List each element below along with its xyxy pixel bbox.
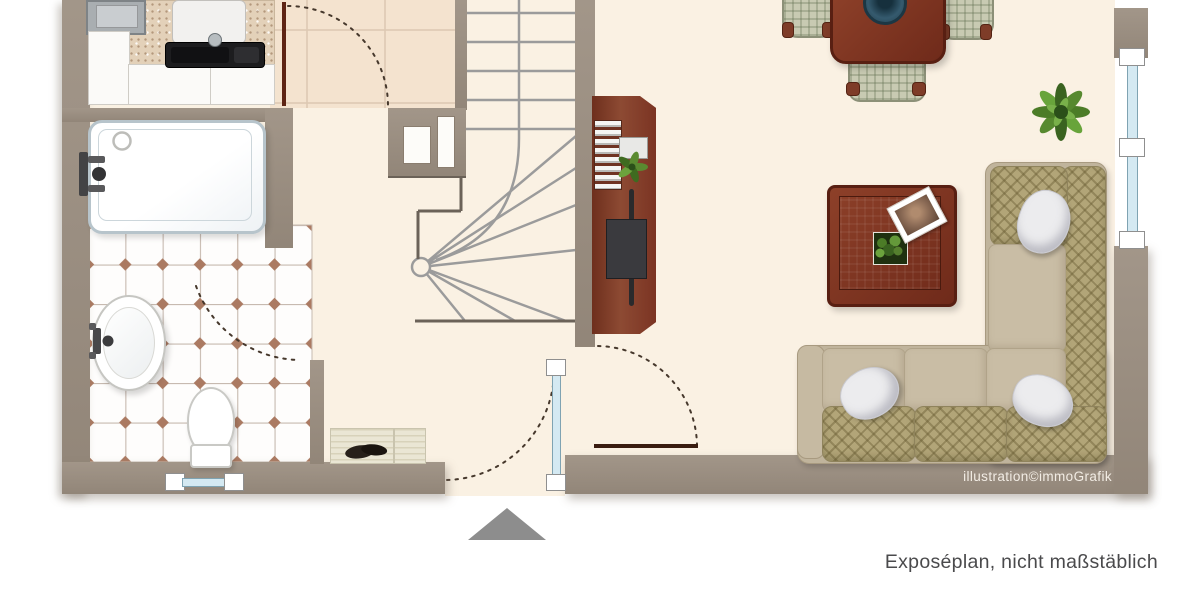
entrance-door-frame: [546, 359, 566, 376]
bathtub-inner: [98, 129, 252, 221]
kitchen-faucet: [208, 33, 222, 47]
wall-bathroom-lower: [310, 360, 324, 464]
window-glass: [182, 478, 227, 487]
wall-bathroom-stub: [265, 108, 293, 248]
window-frame: [1119, 48, 1145, 66]
chair-armrest: [846, 82, 860, 96]
duct-block: [388, 108, 466, 178]
duct-niche-right: [437, 116, 455, 168]
sofa-armrest-left: [797, 345, 825, 459]
window-frame: [1119, 138, 1145, 157]
stair-newel-post: [412, 258, 430, 276]
credit-text: illustration©immoGrafik: [860, 469, 1112, 487]
chair-armrest: [782, 22, 794, 38]
wall-kitchen-stair: [455, 0, 467, 110]
floor-plan: illustration©immoGrafik Exposéplan, nich…: [0, 0, 1200, 600]
window-frame: [1119, 231, 1145, 249]
washbasin: [92, 295, 166, 391]
wall-left: [62, 0, 90, 494]
sofa-seat-bottom-2: [904, 348, 988, 412]
kitchen-sink-bowl-left: [171, 47, 229, 63]
duct-niche-left: [403, 126, 431, 164]
tv-unit: [606, 219, 647, 279]
kitchen-cabinet-mid: [128, 64, 212, 105]
sideboard-books: [594, 120, 622, 190]
sideboard-box: [619, 137, 648, 159]
shoe-bench-left: [330, 428, 394, 464]
kitchen-sink-bowl-right: [234, 47, 259, 63]
chair-armrest: [980, 24, 992, 40]
stair-enclosure-lines: [418, 175, 465, 259]
sofa-back-bottom-2: [914, 406, 1008, 462]
washbasin-bowl: [103, 307, 155, 379]
stove-inner: [96, 5, 138, 28]
living-window: [1119, 48, 1143, 247]
wall-bottom-left: [62, 462, 445, 494]
kitchen-door-arc: [288, 6, 388, 106]
entrance-arrow: [468, 508, 546, 540]
caption-text: Exposéplan, nicht maßstäblich: [858, 551, 1158, 577]
window-frame: [224, 473, 244, 491]
kitchen-cabinet-left: [88, 31, 130, 105]
entrance-door-arc: [447, 374, 554, 480]
kitchen-cabinet-right: [210, 64, 275, 105]
wall-right-bottom: [1114, 246, 1148, 494]
bathroom-window: [165, 473, 242, 490]
entrance-door-frame: [546, 474, 566, 491]
kitchen-tile-grid: [270, 0, 455, 108]
toilet-tank: [190, 444, 232, 468]
living-door-arc: [598, 346, 697, 445]
entrance-door: [546, 359, 564, 490]
chair-armrest: [912, 82, 926, 96]
entrance-door-glass: [552, 372, 561, 479]
shoe-bench-right: [394, 428, 426, 464]
sofa-seat-right: [988, 244, 1066, 352]
bathtub: [88, 120, 266, 234]
stove: [86, 0, 146, 35]
